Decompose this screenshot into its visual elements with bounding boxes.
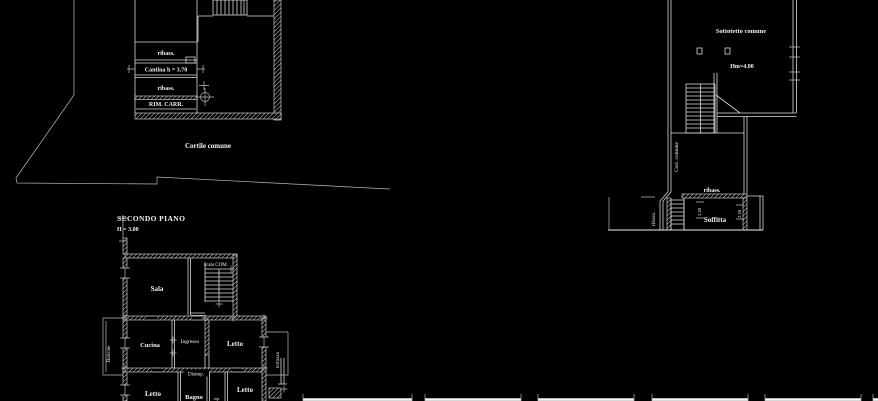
label-band-top: ribass. xyxy=(158,51,175,57)
label-soffitta: Soffitta xyxy=(704,216,727,224)
label-attic-band: ribass. xyxy=(704,188,721,194)
cad-drawing-canvas: ribass. Cantina h = 3.70 ribass. RIM. CA… xyxy=(0,0,878,401)
label-sala: Sala xyxy=(151,285,164,293)
label-terrazza: terrazza xyxy=(276,351,281,368)
plan-title: SECONDO PIANO xyxy=(117,214,185,223)
plan-height-note: H = 3.00 xyxy=(117,227,139,233)
label-cucina: Cucina xyxy=(140,342,161,349)
label-dim-right: 2.20 xyxy=(737,209,742,218)
label-rimessa: RIM. CARR. xyxy=(149,102,184,108)
label-scala-com: scala COM. xyxy=(204,263,228,268)
label-left-band: ribass. xyxy=(651,211,657,226)
label-cantina: Cantina h = 3.70 xyxy=(145,68,187,74)
label-letto-bottom-right: Letto xyxy=(237,386,253,394)
label-letto-right: Letto xyxy=(227,340,243,348)
label-sottotetto: Sottotetto comune xyxy=(716,28,766,35)
label-dim-left: 2.20 xyxy=(697,207,702,216)
label-balcone: Balcone xyxy=(107,345,112,362)
label-cortile-comune: Cortile comune xyxy=(185,142,231,150)
label-band-bottom: ribass. xyxy=(158,86,175,92)
label-letto-bottom-left: Letto xyxy=(145,390,161,398)
label-bagno: Bagno xyxy=(185,394,203,401)
label-disimpegno: Disimp. xyxy=(188,373,204,378)
label-ripostiglio: rip. xyxy=(214,396,220,401)
floorplan-svg: ribass. Cantina h = 3.70 ribass. RIM. CA… xyxy=(0,0,878,401)
label-ingresso: Ingresso xyxy=(181,339,200,345)
label-corridor: Corr. comune xyxy=(674,142,680,172)
label-hm: Hm=4.00 xyxy=(730,64,754,70)
